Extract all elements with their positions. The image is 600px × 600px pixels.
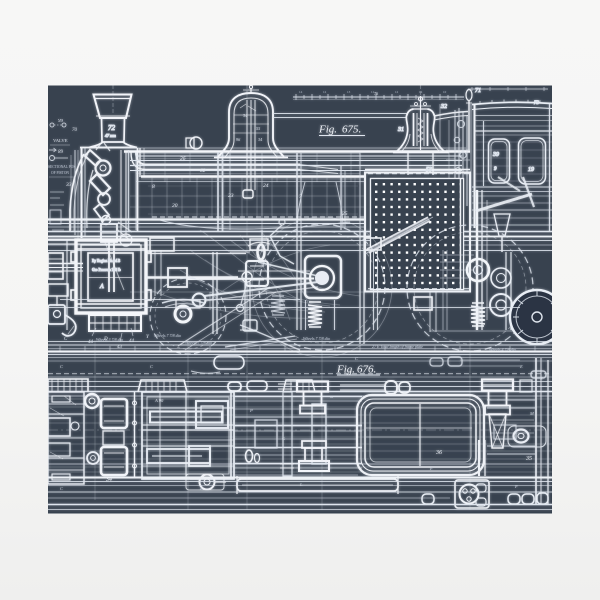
svg-text:89: 89: [58, 150, 64, 155]
svg-text:12: 12: [323, 90, 327, 94]
svg-text:23: 23: [228, 193, 234, 199]
svg-text:39: 39: [492, 152, 499, 158]
svg-text:54: 54: [243, 113, 247, 118]
svg-text:Fig.: Fig.: [318, 124, 337, 136]
svg-text:31: 31: [397, 127, 404, 133]
svg-text:24: 24: [263, 182, 269, 189]
svg-text:13: 13: [347, 90, 351, 94]
svg-text:19: 19: [528, 167, 534, 173]
svg-text:25: 25: [342, 211, 348, 217]
svg-text:72: 72: [108, 124, 116, 132]
svg-text:F: F: [429, 466, 433, 471]
svg-text:VALVE: VALVE: [53, 138, 68, 143]
svg-text:A: A: [99, 284, 104, 290]
svg-text:E: E: [539, 376, 543, 381]
svg-text:Wheels 3 7/8 dia: Wheels 3 7/8 dia: [96, 337, 123, 342]
svg-text:Wheels 7 7/8 dia: Wheels 7 7/8 dia: [154, 333, 181, 338]
svg-text:44: 44: [88, 340, 94, 345]
svg-text:32: 32: [440, 104, 447, 110]
svg-text:20: 20: [172, 203, 178, 209]
svg-text:8: 8: [152, 184, 155, 190]
svg-text:10: 10: [443, 90, 447, 94]
svg-text:Gro Pressure 160 lb: Gro Pressure 160 lb: [92, 268, 121, 272]
svg-text:14: 14: [299, 90, 303, 94]
svg-text:Wheels 4 7/8 dia: Wheels 4 7/8 dia: [489, 347, 516, 352]
svg-text:Ry Engine No 14 B: Ry Engine No 14 B: [92, 259, 121, 263]
svg-text:55: 55: [256, 126, 260, 131]
svg-text:35: 35: [525, 456, 532, 462]
svg-text:675.: 675.: [342, 124, 361, 136]
svg-text:Wheels 7 7/8 dia: Wheels 7 7/8 dia: [185, 340, 212, 345]
svg-text:73: 73: [534, 101, 540, 106]
svg-text:62: 62: [200, 168, 206, 174]
svg-text:OF PISTON: OF PISTON: [51, 171, 69, 175]
svg-text:7: 7: [299, 194, 302, 200]
svg-text:70: 70: [72, 128, 78, 133]
svg-text:Wheels 7 7/8 dia: Wheels 7 7/8 dia: [303, 336, 330, 341]
svg-text:M: M: [529, 411, 534, 416]
svg-text:43: 43: [117, 345, 123, 350]
svg-text:P: P: [249, 408, 253, 413]
svg-text:53: 53: [426, 167, 432, 173]
svg-text:76: 76: [374, 91, 378, 96]
svg-text:12: 12: [395, 90, 399, 94]
svg-text:47 mm: 47 mm: [105, 133, 116, 138]
svg-text:26: 26: [180, 156, 186, 162]
svg-text:E: E: [199, 486, 203, 491]
svg-text:L: L: [299, 482, 303, 487]
svg-text:A 90: A 90: [154, 398, 164, 403]
svg-text:27 E Total length of frame pl: 27 E Total length of frame plate: [372, 344, 423, 349]
svg-text:36: 36: [435, 450, 442, 456]
svg-text:F: F: [514, 484, 518, 489]
svg-text:34: 34: [258, 137, 262, 142]
svg-text:E: E: [519, 364, 523, 369]
